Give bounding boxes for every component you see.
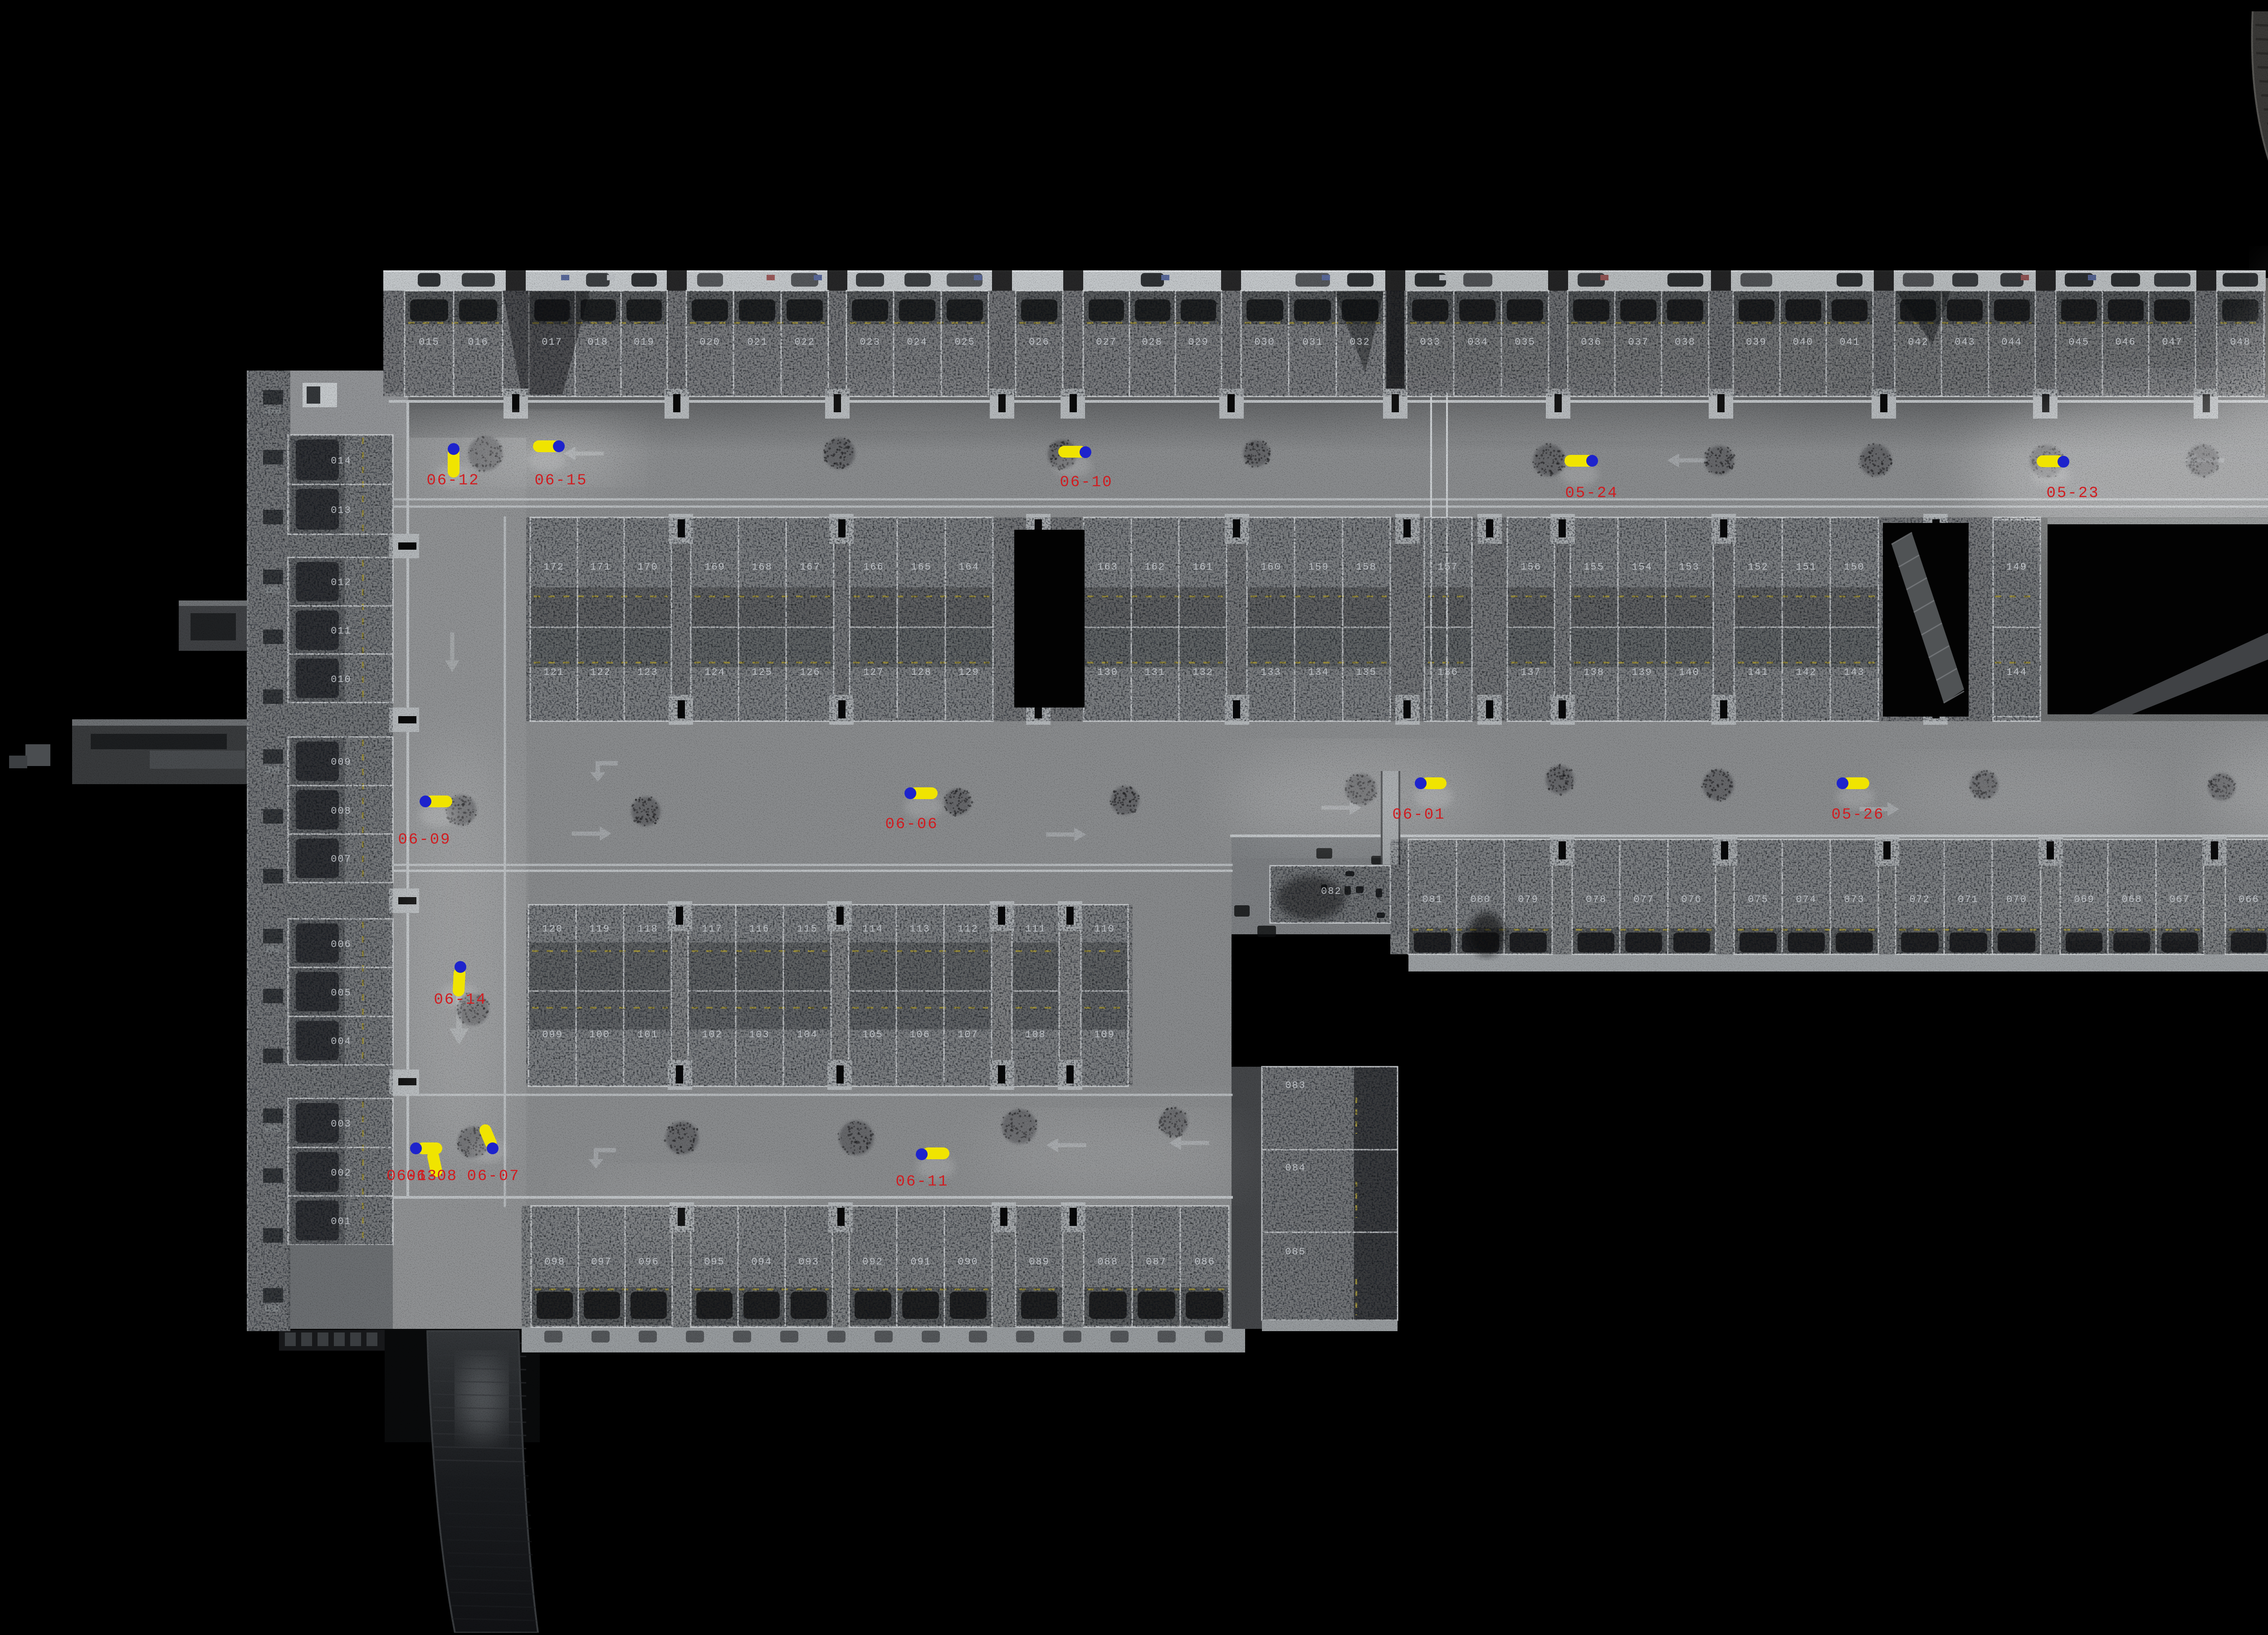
svg-text:043: 043 <box>1955 337 1975 348</box>
svg-text:015: 015 <box>419 337 440 348</box>
svg-text:134: 134 <box>1308 667 1329 678</box>
svg-text:011: 011 <box>331 625 352 637</box>
svg-text:047: 047 <box>2162 337 2183 348</box>
svg-text:144: 144 <box>2006 667 2027 678</box>
svg-text:06-07: 06-07 <box>467 1168 520 1185</box>
svg-text:028: 028 <box>1142 337 1163 348</box>
svg-text:093: 093 <box>798 1256 819 1268</box>
svg-text:140: 140 <box>1679 667 1700 678</box>
svg-text:027: 027 <box>1096 337 1117 348</box>
svg-text:039: 039 <box>1746 337 1767 348</box>
svg-text:003: 003 <box>331 1118 352 1130</box>
svg-text:124: 124 <box>704 667 725 678</box>
svg-text:138: 138 <box>1584 667 1604 678</box>
svg-text:004: 004 <box>331 1036 352 1047</box>
svg-text:157: 157 <box>1437 561 1458 573</box>
svg-text:141: 141 <box>1748 667 1769 678</box>
svg-text:112: 112 <box>958 923 978 935</box>
svg-text:008: 008 <box>331 805 352 817</box>
svg-text:05-26: 05-26 <box>1831 806 1884 824</box>
svg-text:013: 013 <box>331 505 352 516</box>
svg-text:091: 091 <box>910 1256 931 1268</box>
svg-text:126: 126 <box>800 667 821 678</box>
svg-text:149: 149 <box>2006 561 2027 573</box>
svg-text:101: 101 <box>637 1029 658 1040</box>
svg-text:020: 020 <box>699 337 720 348</box>
svg-text:113: 113 <box>909 923 930 935</box>
svg-text:118: 118 <box>637 923 658 935</box>
svg-text:106: 106 <box>909 1029 930 1040</box>
svg-text:031: 031 <box>1302 337 1323 348</box>
svg-text:009: 009 <box>331 756 352 768</box>
svg-text:069: 069 <box>2074 894 2095 905</box>
svg-text:06-09: 06-09 <box>398 831 451 849</box>
svg-text:100: 100 <box>589 1029 610 1040</box>
svg-text:108: 108 <box>1025 1029 1046 1040</box>
svg-text:023: 023 <box>860 337 880 348</box>
svg-text:072: 072 <box>1909 894 1930 905</box>
svg-text:096: 096 <box>638 1256 659 1268</box>
svg-text:017: 017 <box>542 337 562 348</box>
svg-text:06-12: 06-12 <box>426 472 479 489</box>
svg-text:136: 136 <box>1437 667 1458 678</box>
svg-text:156: 156 <box>1520 561 1541 573</box>
svg-text:029: 029 <box>1188 337 1209 348</box>
svg-text:005: 005 <box>331 987 352 999</box>
svg-text:048: 048 <box>2230 337 2251 348</box>
svg-text:098: 098 <box>544 1256 565 1268</box>
svg-text:158: 158 <box>1356 561 1377 573</box>
svg-text:160: 160 <box>1261 561 1281 573</box>
svg-text:128: 128 <box>911 667 932 678</box>
svg-text:040: 040 <box>1793 337 1813 348</box>
svg-text:045: 045 <box>2068 337 2089 348</box>
svg-text:166: 166 <box>863 561 884 573</box>
svg-text:129: 129 <box>958 667 979 678</box>
svg-text:075: 075 <box>1748 894 1769 905</box>
svg-text:019: 019 <box>634 337 655 348</box>
svg-text:036: 036 <box>1581 337 1602 348</box>
svg-text:095: 095 <box>704 1256 725 1268</box>
svg-text:077: 077 <box>1633 894 1654 905</box>
svg-text:06-08: 06-08 <box>406 1168 457 1185</box>
svg-text:087: 087 <box>1146 1256 1167 1268</box>
svg-text:079: 079 <box>1518 894 1539 905</box>
svg-text:076: 076 <box>1681 894 1702 905</box>
svg-text:104: 104 <box>797 1029 818 1040</box>
svg-text:153: 153 <box>1679 561 1700 573</box>
svg-text:06-06: 06-06 <box>885 816 938 833</box>
svg-text:071: 071 <box>1958 894 1979 905</box>
svg-text:151: 151 <box>1796 561 1817 573</box>
svg-text:163: 163 <box>1097 561 1118 573</box>
svg-text:127: 127 <box>863 667 884 678</box>
svg-text:117: 117 <box>702 923 723 935</box>
svg-text:035: 035 <box>1515 337 1535 348</box>
svg-text:099: 099 <box>542 1029 563 1040</box>
svg-text:070: 070 <box>2006 894 2027 905</box>
svg-text:073: 073 <box>1844 894 1865 905</box>
svg-text:170: 170 <box>637 561 658 573</box>
svg-text:06-14: 06-14 <box>434 991 487 1009</box>
svg-text:167: 167 <box>800 561 821 573</box>
svg-text:042: 042 <box>1908 337 1929 348</box>
svg-text:06-11: 06-11 <box>895 1173 948 1191</box>
svg-text:161: 161 <box>1193 561 1213 573</box>
svg-text:131: 131 <box>1144 667 1165 678</box>
svg-text:135: 135 <box>1356 667 1377 678</box>
svg-text:159: 159 <box>1308 561 1329 573</box>
svg-text:086: 086 <box>1194 1256 1215 1268</box>
svg-text:032: 032 <box>1349 337 1370 348</box>
svg-text:041: 041 <box>1839 337 1860 348</box>
svg-text:143: 143 <box>1844 667 1865 678</box>
svg-text:137: 137 <box>1520 667 1541 678</box>
svg-text:107: 107 <box>958 1029 978 1040</box>
svg-text:082: 082 <box>1321 886 1342 897</box>
svg-text:165: 165 <box>911 561 932 573</box>
svg-text:110: 110 <box>1094 923 1115 935</box>
svg-text:094: 094 <box>751 1256 772 1268</box>
svg-text:116: 116 <box>749 923 770 935</box>
svg-text:030: 030 <box>1254 337 1275 348</box>
svg-text:171: 171 <box>590 561 611 573</box>
svg-text:172: 172 <box>543 561 564 573</box>
svg-text:164: 164 <box>958 561 979 573</box>
svg-text:130: 130 <box>1097 667 1118 678</box>
svg-text:016: 016 <box>468 337 489 348</box>
svg-text:068: 068 <box>2121 894 2142 905</box>
svg-text:132: 132 <box>1193 667 1213 678</box>
svg-text:002: 002 <box>331 1167 352 1179</box>
svg-text:078: 078 <box>1586 894 1607 905</box>
svg-text:074: 074 <box>1796 894 1817 905</box>
svg-text:06-01: 06-01 <box>1392 806 1445 824</box>
svg-text:05-23: 05-23 <box>2046 485 2099 502</box>
svg-text:06-10: 06-10 <box>1060 474 1113 491</box>
svg-text:037: 037 <box>1628 337 1649 348</box>
svg-text:150: 150 <box>1844 561 1865 573</box>
svg-text:06-15: 06-15 <box>534 472 587 489</box>
svg-text:088: 088 <box>1097 1256 1118 1268</box>
svg-text:152: 152 <box>1748 561 1769 573</box>
svg-text:006: 006 <box>331 939 352 950</box>
svg-text:169: 169 <box>704 561 725 573</box>
svg-text:046: 046 <box>2115 337 2136 348</box>
svg-text:089: 089 <box>1029 1256 1050 1268</box>
svg-text:022: 022 <box>794 337 815 348</box>
svg-text:111: 111 <box>1025 923 1046 935</box>
svg-text:154: 154 <box>1632 561 1652 573</box>
svg-text:024: 024 <box>907 337 928 348</box>
svg-text:085: 085 <box>1285 1246 1306 1258</box>
svg-text:021: 021 <box>747 337 768 348</box>
svg-text:103: 103 <box>749 1029 770 1040</box>
svg-text:018: 018 <box>587 337 608 348</box>
svg-text:014: 014 <box>331 455 352 467</box>
svg-text:084: 084 <box>1285 1162 1306 1174</box>
svg-text:122: 122 <box>590 667 611 678</box>
svg-text:066: 066 <box>2239 894 2259 905</box>
svg-text:092: 092 <box>862 1256 883 1268</box>
svg-text:125: 125 <box>752 667 772 678</box>
svg-text:081: 081 <box>1422 894 1443 905</box>
svg-text:102: 102 <box>702 1029 723 1040</box>
svg-text:010: 010 <box>331 674 352 685</box>
svg-text:123: 123 <box>637 667 658 678</box>
svg-text:119: 119 <box>589 923 610 935</box>
svg-text:155: 155 <box>1584 561 1604 573</box>
svg-text:012: 012 <box>331 577 352 588</box>
svg-text:142: 142 <box>1796 667 1817 678</box>
svg-text:083: 083 <box>1285 1080 1306 1091</box>
svg-text:115: 115 <box>797 923 818 935</box>
svg-text:033: 033 <box>1420 337 1441 348</box>
svg-text:025: 025 <box>954 337 975 348</box>
svg-text:026: 026 <box>1029 337 1050 348</box>
svg-text:109: 109 <box>1094 1029 1115 1040</box>
svg-text:162: 162 <box>1144 561 1165 573</box>
svg-text:080: 080 <box>1470 894 1491 905</box>
svg-text:090: 090 <box>958 1256 978 1268</box>
svg-text:114: 114 <box>862 923 883 935</box>
svg-text:034: 034 <box>1467 337 1488 348</box>
svg-text:097: 097 <box>591 1256 612 1268</box>
svg-text:001: 001 <box>331 1216 352 1227</box>
svg-text:120: 120 <box>542 923 563 935</box>
svg-text:139: 139 <box>1632 667 1652 678</box>
svg-text:168: 168 <box>752 561 772 573</box>
svg-text:007: 007 <box>331 854 352 865</box>
svg-text:121: 121 <box>543 667 564 678</box>
svg-text:05-24: 05-24 <box>1565 485 1618 502</box>
svg-text:044: 044 <box>2001 337 2022 348</box>
svg-text:105: 105 <box>862 1029 883 1040</box>
svg-text:038: 038 <box>1675 337 1696 348</box>
svg-text:133: 133 <box>1261 667 1281 678</box>
svg-text:067: 067 <box>2169 894 2190 905</box>
